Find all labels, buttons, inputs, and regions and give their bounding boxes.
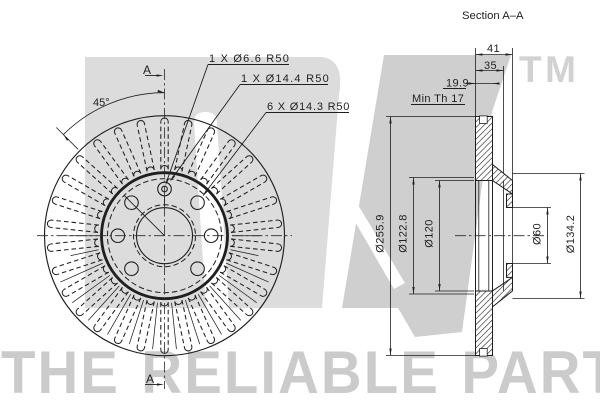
svg-text:45°: 45°: [93, 97, 110, 109]
svg-text:A: A: [146, 372, 154, 386]
svg-text:1 X Ø14.4 R50: 1 X Ø14.4 R50: [241, 73, 330, 85]
svg-text:Ø120: Ø120: [424, 219, 436, 248]
svg-text:Ø60: Ø60: [532, 223, 544, 245]
svg-text:A: A: [143, 63, 151, 77]
svg-text:19.9: 19.9: [446, 78, 469, 90]
svg-text:Ø134.2: Ø134.2: [565, 215, 577, 253]
svg-text:Section A–A: Section A–A: [462, 10, 524, 22]
svg-text:THE RELIABLE PART: THE RELIABLE PART: [1, 339, 600, 400]
svg-text:41: 41: [487, 43, 500, 55]
svg-text:TM: TM: [519, 49, 579, 90]
svg-text:35: 35: [484, 60, 497, 72]
svg-text:Ø122.8: Ø122.8: [398, 214, 410, 252]
svg-text:1 X Ø6.6 R50: 1 X Ø6.6 R50: [209, 53, 290, 65]
svg-text:Min Th 17: Min Th 17: [412, 93, 464, 105]
svg-text:Ø255.9: Ø255.9: [375, 214, 387, 252]
svg-text:6 X Ø14.3 R50: 6 X Ø14.3 R50: [267, 101, 350, 113]
